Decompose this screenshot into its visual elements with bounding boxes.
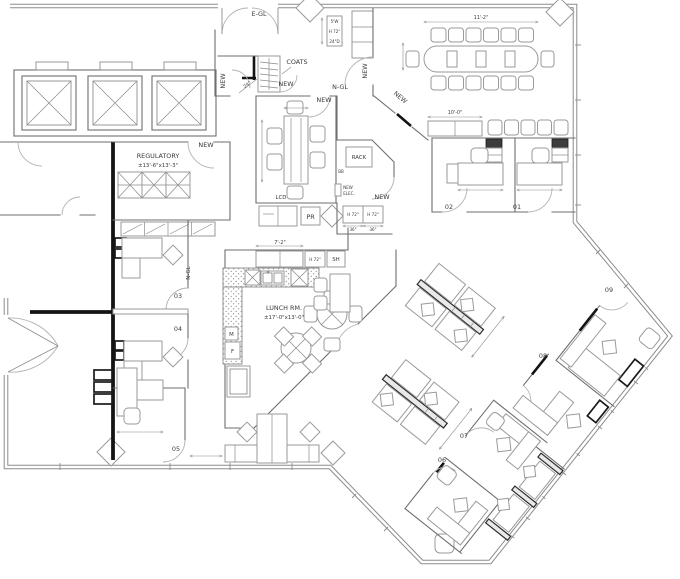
annotations: E-GL COATS N-GL N-GL NEW NEW NEW NEW NEW… bbox=[137, 10, 613, 464]
floor-plan-page: E-GL COATS N-GL N-GL NEW NEW NEW NEW NEW… bbox=[0, 0, 680, 579]
room-dims-lunch: ±17'-0"x13'-0" bbox=[264, 315, 304, 321]
label-new-2: NEW bbox=[278, 80, 294, 88]
office-01 bbox=[517, 139, 568, 190]
dim-cab-w: 5'W bbox=[331, 19, 339, 24]
office-number-07: 07 bbox=[460, 432, 468, 440]
label-n-gl: N-GL bbox=[332, 83, 348, 91]
lunch-room bbox=[223, 246, 396, 428]
office-number-05: 05 bbox=[172, 445, 180, 453]
elec-panel bbox=[335, 184, 341, 196]
label-new-elec-2: ELEC. bbox=[343, 191, 355, 196]
office-number-03: 03 bbox=[174, 292, 182, 300]
label-h72-a: H 72" bbox=[347, 212, 359, 217]
office-number-01: 01 bbox=[513, 203, 521, 211]
side-desk bbox=[314, 274, 350, 312]
column-diamond bbox=[321, 205, 343, 227]
meeting-table bbox=[284, 116, 308, 184]
room-name-regulatory: REGULATORY bbox=[137, 152, 180, 160]
dim-11ft2: 11'-2" bbox=[474, 15, 488, 21]
elevator-core bbox=[14, 62, 216, 136]
office-02 bbox=[447, 139, 503, 190]
meeting-room bbox=[256, 96, 337, 203]
guest-chair-row bbox=[488, 120, 568, 135]
label-e-gl: E-GL bbox=[251, 10, 267, 18]
dim-cab-d: 24"D bbox=[329, 39, 339, 44]
office-number-02: 02 bbox=[445, 203, 453, 211]
dim-24in: 24" bbox=[242, 80, 252, 90]
label-new-6: NEW bbox=[392, 90, 409, 106]
label-lcd: LCD bbox=[276, 195, 287, 201]
label-coats: COATS bbox=[286, 58, 307, 66]
copier-desk bbox=[259, 206, 297, 226]
conference-table bbox=[424, 46, 538, 72]
label-rack: RACK bbox=[352, 155, 367, 161]
label-n-gl-side: N-GL bbox=[186, 266, 192, 279]
wardrobe-band bbox=[121, 222, 215, 236]
room-dims-regulatory: ±13'-6"x13'-3" bbox=[138, 163, 178, 169]
dim-36-b: 36" bbox=[369, 227, 376, 232]
rack-room bbox=[335, 96, 394, 199]
label-new-4: NEW bbox=[316, 96, 332, 104]
office-number-09: 09 bbox=[605, 286, 613, 294]
diagonal-wing bbox=[303, 193, 673, 573]
label-microwave: M bbox=[229, 332, 234, 338]
office-number-08: 08 bbox=[539, 352, 547, 360]
column-diamond bbox=[97, 438, 125, 466]
office-number-04: 04 bbox=[174, 325, 182, 333]
dim-cab-h: H 72" bbox=[329, 29, 341, 34]
label-h72-c: H 72" bbox=[309, 257, 321, 262]
dim-36-a: 36" bbox=[349, 227, 356, 232]
cubicle-pod-b bbox=[368, 356, 463, 447]
dim-10ft: 10'-0" bbox=[448, 110, 462, 116]
floor-plan-drawing: E-GL COATS N-GL N-GL NEW NEW NEW NEW NEW… bbox=[0, 0, 680, 579]
cubicle-pod-a bbox=[402, 261, 498, 353]
label-new-elec-1: NEW bbox=[343, 185, 353, 190]
refrigerator bbox=[227, 366, 250, 397]
column-diamond bbox=[321, 441, 345, 465]
entry-area bbox=[218, 8, 373, 93]
label-freezer: F bbox=[231, 349, 234, 355]
sink bbox=[261, 271, 284, 285]
corridor-shared-desk bbox=[190, 414, 320, 463]
room-name-lunch: LUNCH RM. bbox=[266, 304, 302, 312]
shelving-units bbox=[118, 172, 190, 198]
label-new-3: NEW bbox=[198, 141, 214, 149]
label-pr: PR bbox=[306, 213, 315, 221]
label-bb: BB bbox=[338, 169, 344, 174]
office-number-06: 06 bbox=[438, 456, 446, 464]
label-h72-b: H 72" bbox=[367, 212, 379, 217]
lunch-table-2 bbox=[274, 327, 321, 373]
elevator-shaft bbox=[152, 76, 206, 130]
column-diamond bbox=[296, 0, 324, 22]
office-06-furniture bbox=[412, 464, 494, 545]
label-new-1: NEW bbox=[219, 73, 227, 89]
credenza bbox=[428, 117, 482, 136]
elevator-shaft bbox=[22, 76, 76, 130]
elevator-shaft bbox=[88, 76, 142, 130]
label-new-7: NEW bbox=[374, 193, 390, 201]
lobby-bookcase bbox=[352, 11, 373, 58]
label-new-5: NEW bbox=[361, 63, 369, 79]
label-sh: SH bbox=[332, 257, 339, 263]
dim-7ft2: 7'-2" bbox=[274, 240, 285, 246]
